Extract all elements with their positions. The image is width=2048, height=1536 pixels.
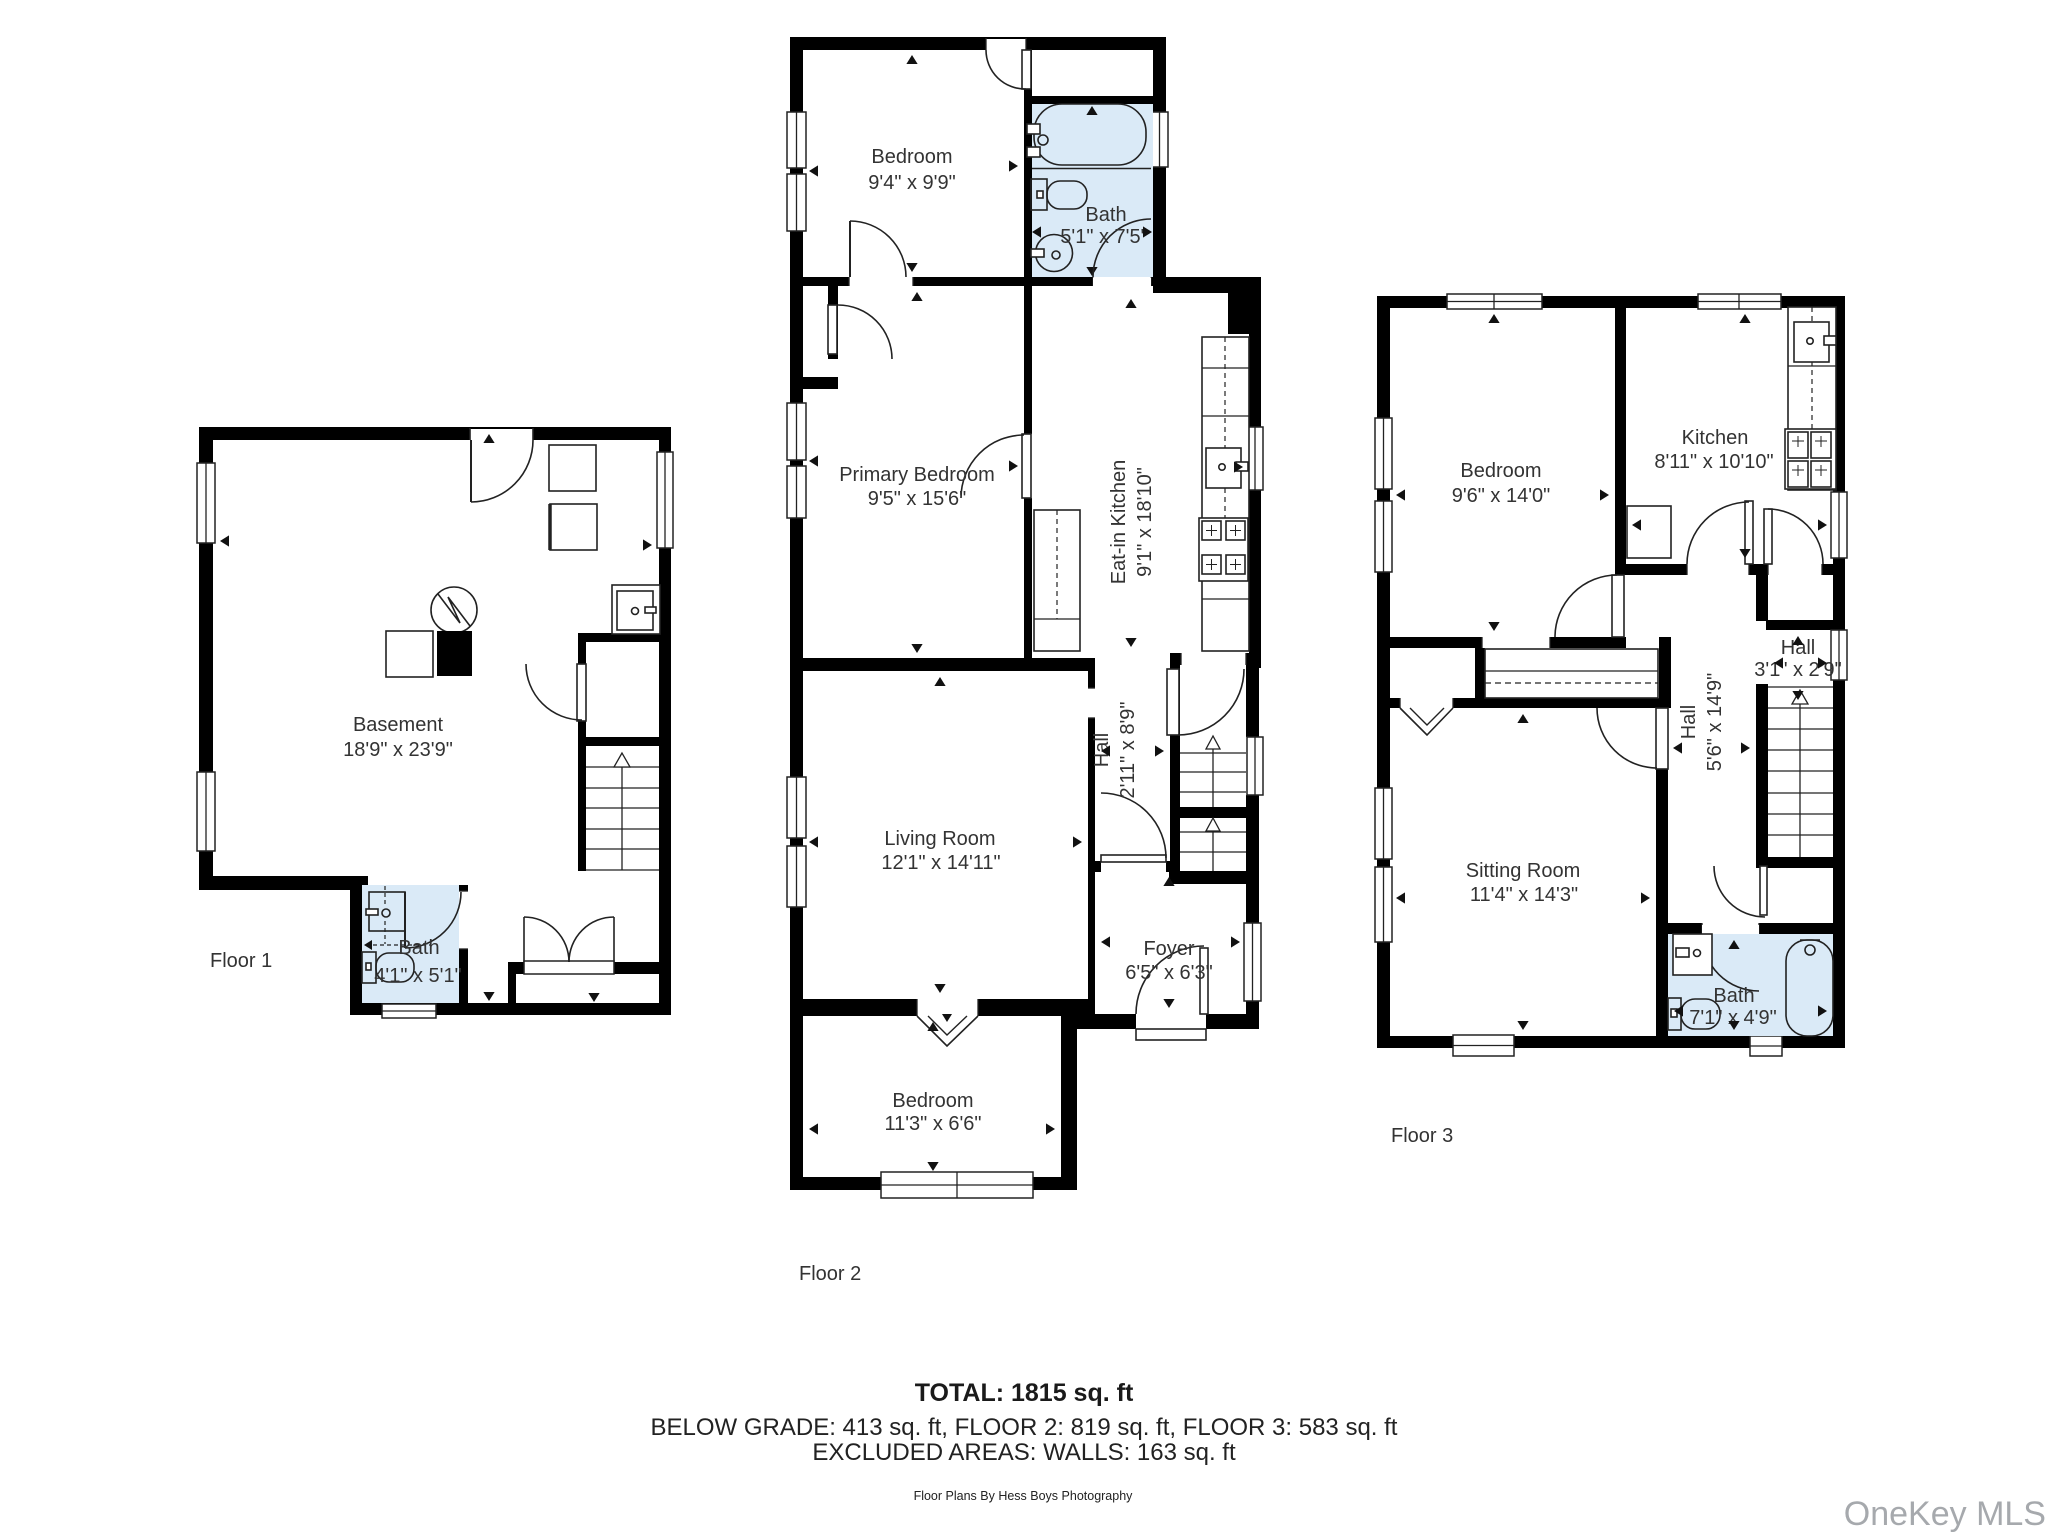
svg-text:EXCLUDED AREAS: WALLS: 163 sq.: EXCLUDED AREAS: WALLS: 163 sq. ft bbox=[812, 1439, 1236, 1466]
svg-text:12'1" x 14'11": 12'1" x 14'11" bbox=[881, 852, 1000, 874]
svg-text:Bath: Bath bbox=[398, 937, 439, 959]
svg-text:9'6" x 14'0": 9'6" x 14'0" bbox=[1452, 485, 1551, 507]
svg-text:5'1" x 7'5": 5'1" x 7'5" bbox=[1060, 226, 1147, 248]
svg-text:Bedroom: Bedroom bbox=[1460, 460, 1541, 482]
svg-text:BELOW GRADE: 413 sq. ft, FLOOR: BELOW GRADE: 413 sq. ft, FLOOR 2: 819 sq… bbox=[651, 1414, 1398, 1441]
svg-text:9'5" x 15'6": 9'5" x 15'6" bbox=[868, 488, 967, 510]
svg-text:5'6" x 14'9": 5'6" x 14'9" bbox=[1704, 673, 1726, 772]
svg-text:Floor 3: Floor 3 bbox=[1391, 1125, 1453, 1147]
svg-text:11'4" x 14'3": 11'4" x 14'3" bbox=[1470, 884, 1578, 906]
svg-text:6'5" x 6'3": 6'5" x 6'3" bbox=[1125, 962, 1212, 984]
svg-text:2'11" x 8'9": 2'11" x 8'9" bbox=[1117, 701, 1139, 798]
svg-text:Bedroom: Bedroom bbox=[892, 1090, 973, 1112]
svg-text:Basement: Basement bbox=[353, 714, 443, 736]
svg-text:Foyer: Foyer bbox=[1143, 938, 1194, 960]
svg-text:8'11" x 10'10": 8'11" x 10'10" bbox=[1654, 451, 1773, 473]
svg-text:TOTAL: 1815 sq. ft: TOTAL: 1815 sq. ft bbox=[915, 1379, 1134, 1407]
svg-text:11'3" x 6'6": 11'3" x 6'6" bbox=[884, 1113, 981, 1135]
svg-text:18'9" x 23'9": 18'9" x 23'9" bbox=[343, 739, 453, 761]
svg-text:3'1" x 2'9": 3'1" x 2'9" bbox=[1754, 659, 1841, 681]
svg-text:9'1" x 18'10": 9'1" x 18'10" bbox=[1134, 467, 1156, 577]
svg-text:Floor Plans By Hess Boys Photo: Floor Plans By Hess Boys Photography bbox=[914, 1489, 1134, 1503]
svg-text:Bedroom: Bedroom bbox=[871, 146, 952, 168]
svg-text:Primary Bedroom: Primary Bedroom bbox=[839, 464, 995, 486]
svg-text:Bath: Bath bbox=[1713, 985, 1754, 1007]
svg-text:Bath: Bath bbox=[1085, 204, 1126, 226]
svg-text:Living Room: Living Room bbox=[884, 828, 995, 850]
svg-text:Floor 2: Floor 2 bbox=[799, 1263, 861, 1285]
svg-text:Sitting Room: Sitting Room bbox=[1466, 860, 1581, 882]
svg-text:9'4" x 9'9": 9'4" x 9'9" bbox=[868, 172, 955, 194]
svg-text:Floor 1: Floor 1 bbox=[210, 950, 272, 972]
svg-text:Hall: Hall bbox=[1678, 705, 1700, 739]
svg-text:4'1" x 5'1": 4'1" x 5'1" bbox=[374, 965, 461, 987]
svg-text:Kitchen: Kitchen bbox=[1682, 427, 1749, 449]
svg-text:OneKey MLS: OneKey MLS bbox=[1844, 1495, 2046, 1533]
svg-text:Eat-in Kitchen: Eat-in Kitchen bbox=[1108, 460, 1130, 585]
